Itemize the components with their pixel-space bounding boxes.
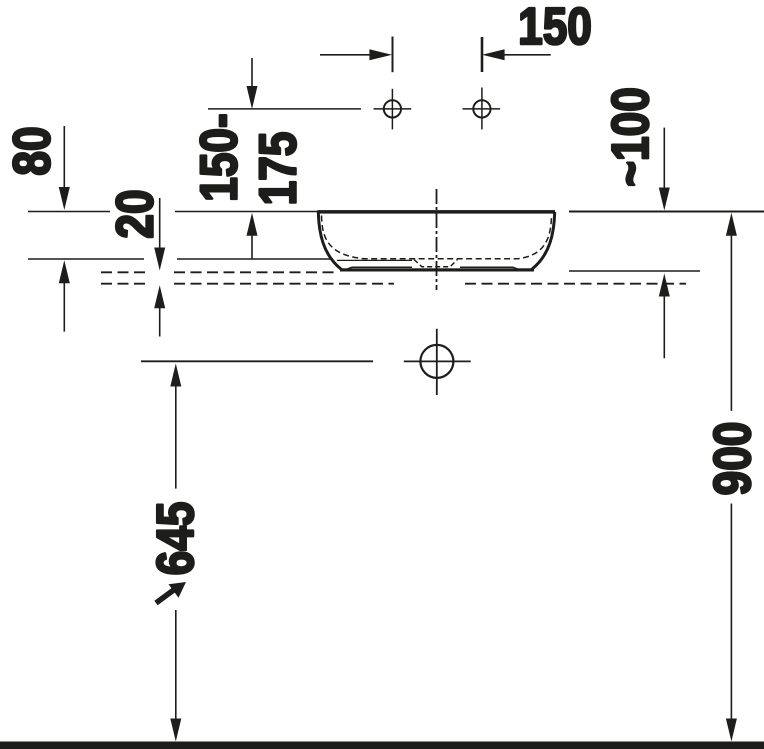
svg-text:20: 20 bbox=[107, 189, 165, 238]
svg-text:150-: 150- bbox=[191, 113, 249, 201]
svg-text:80: 80 bbox=[4, 126, 62, 175]
svg-text:900: 900 bbox=[704, 422, 762, 496]
svg-text:175: 175 bbox=[250, 132, 308, 206]
svg-text:~100: ~100 bbox=[602, 87, 660, 187]
svg-text:645: 645 bbox=[147, 502, 205, 576]
svg-text:150: 150 bbox=[518, 0, 592, 56]
